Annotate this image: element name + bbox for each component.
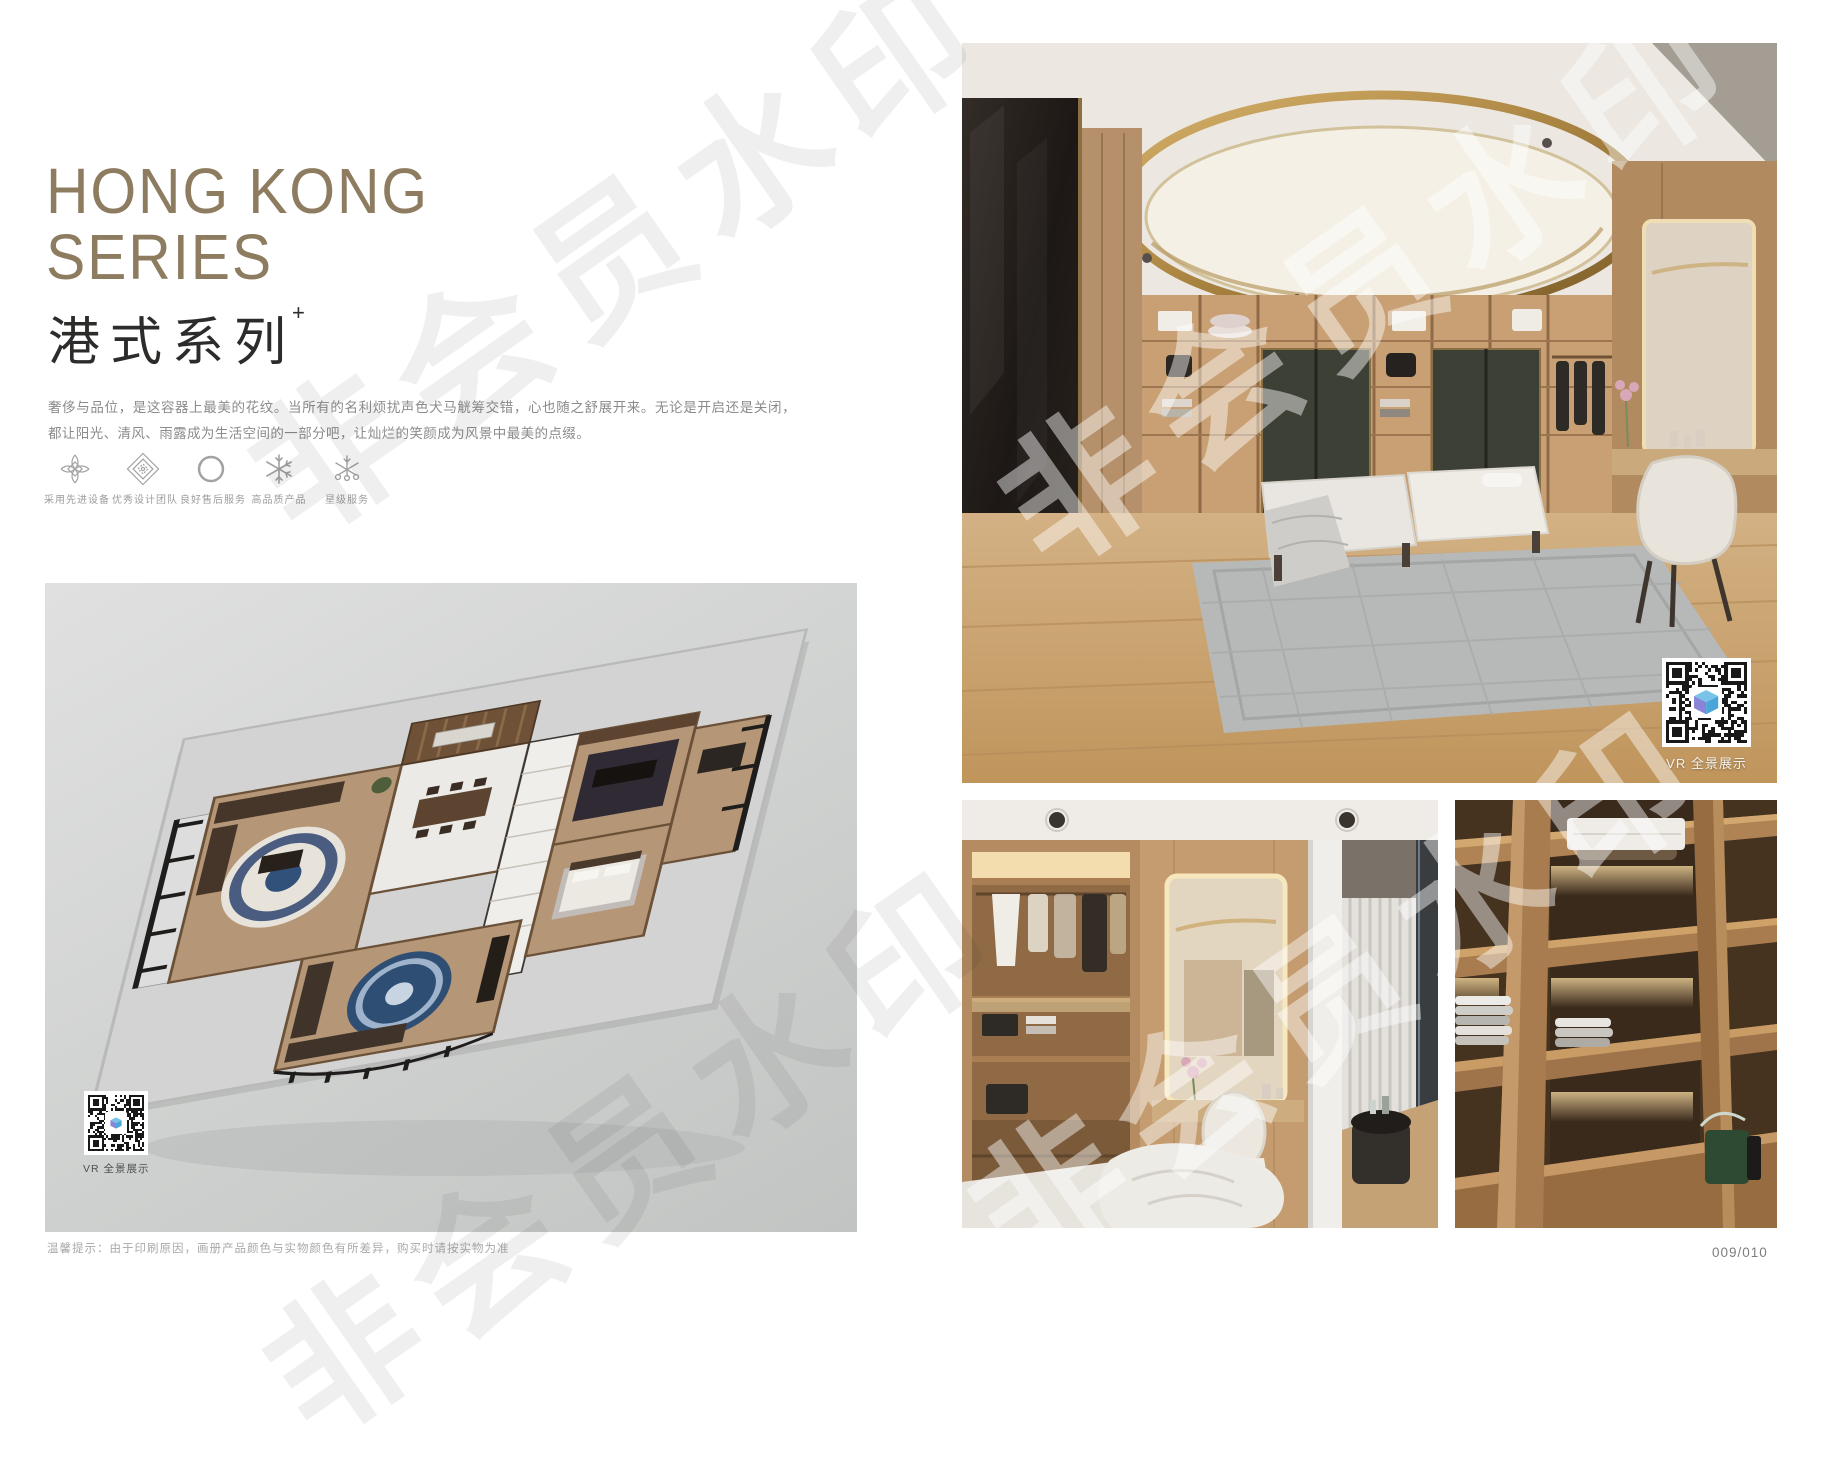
series-title-chinese-text: 港式系列 — [48, 314, 296, 372]
feature-item: 采用先进设备 — [44, 452, 106, 506]
qr-cube-logo — [105, 1112, 127, 1134]
feature-label: 采用先进设备 — [44, 491, 106, 506]
qr-cube-logo — [1691, 687, 1721, 717]
ring-icon — [194, 452, 228, 486]
series-title-line2: SERIES — [46, 224, 429, 290]
photo-shelf-closeup — [1455, 800, 1777, 1228]
star-flake-icon — [330, 452, 364, 486]
dressing-area-illustration — [962, 800, 1438, 1228]
feature-item: 良好售后服务 — [180, 452, 242, 506]
catalog-page: { "watermark": { "text": "非会员水印" }, "lef… — [0, 0, 1836, 1307]
series-title-line1: HONG KONG — [46, 158, 429, 224]
feature-label: 优秀设计团队 — [112, 491, 174, 506]
floorplan-panel: VR 全景展示 — [45, 583, 857, 1232]
feature-label: 高品质产品 — [248, 491, 310, 506]
qr-code — [1662, 658, 1751, 747]
feature-list: 采用先进设备 优秀设计团队 良好售后服务 — [44, 452, 378, 506]
shelf-closeup-illustration — [1455, 800, 1777, 1228]
feature-item: 星级服务 — [316, 452, 378, 506]
nested-diamond-icon — [126, 452, 160, 486]
series-title-english: HONG KONG SERIES — [46, 158, 429, 290]
floorplan-illustration — [45, 583, 857, 1232]
series-title-chinese: 港式系列+ — [48, 300, 309, 375]
feature-item: 高品质产品 — [248, 452, 310, 506]
vr-panorama-label: VR 全景展示 — [83, 1161, 150, 1176]
petal-diamond-icon — [58, 452, 92, 486]
series-description: 奢侈与品位，是这容器上最美的花纹。当所有的名利烦扰声色犬马觥筹交错，心也随之舒展… — [48, 395, 796, 447]
main-photo-walk-in-closet: VR 全景展示 — [962, 43, 1777, 783]
walk-in-closet-illustration — [962, 43, 1777, 783]
vr-panorama-label: VR 全景展示 — [1662, 753, 1751, 772]
plus-mark: + — [292, 300, 305, 325]
floorplan-qr-block: VR 全景展示 — [83, 1091, 150, 1176]
feature-label: 良好售后服务 — [180, 491, 242, 506]
feature-item: 优秀设计团队 — [112, 452, 174, 506]
qr-code — [84, 1091, 148, 1155]
print-disclaimer: 温馨提示：由于印刷原因，画册产品颜色与实物颜色有所差异，购买时请按实物为准 — [47, 1240, 510, 1256]
page-number: 009/010 — [1712, 1245, 1768, 1260]
main-qr-block: VR 全景展示 — [1662, 658, 1751, 772]
photo-dressing-area — [962, 800, 1438, 1228]
feature-label: 星级服务 — [316, 491, 378, 506]
snowflake-icon — [262, 452, 296, 486]
